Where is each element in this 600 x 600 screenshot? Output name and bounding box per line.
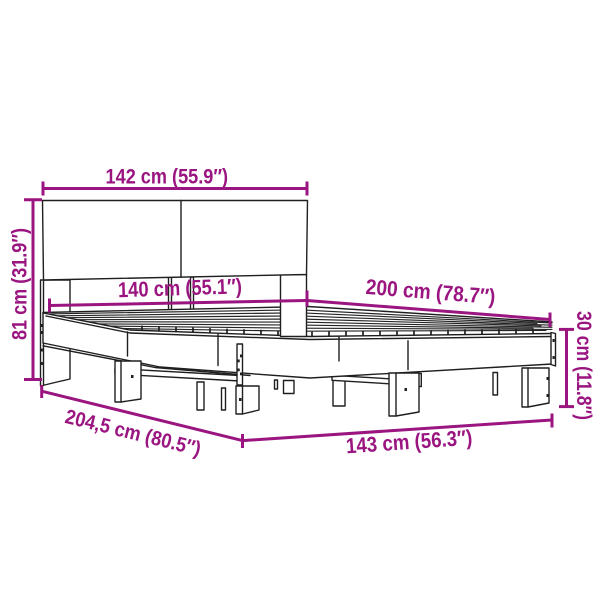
svg-text:142 cm (55.9″): 142 cm (55.9″)	[106, 164, 229, 188]
svg-text:81 cm (31.9″): 81 cm (31.9″)	[8, 228, 32, 340]
svg-text:140 cm (55.1″): 140 cm (55.1″)	[118, 274, 243, 302]
svg-text:30 cm (11.8″): 30 cm (11.8″)	[572, 311, 596, 420]
